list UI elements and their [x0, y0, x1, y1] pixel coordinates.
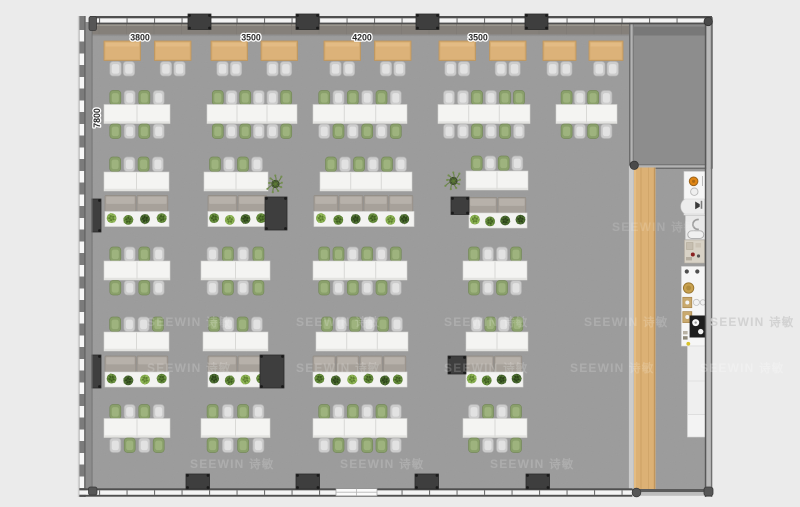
svg-text:3500: 3500	[241, 33, 261, 43]
svg-text:SEEWIN 诗敏: SEEWIN 诗敏	[190, 457, 274, 471]
svg-text:SEEWIN 诗敏: SEEWIN 诗敏	[700, 361, 784, 375]
svg-text:SEEWIN 诗敏: SEEWIN 诗敏	[612, 220, 696, 234]
svg-text:SEEWIN 诗敏: SEEWIN 诗敏	[444, 361, 528, 375]
svg-text:SEEWIN 诗敏: SEEWIN 诗敏	[296, 315, 380, 329]
svg-text:SEEWIN 诗敏: SEEWIN 诗敏	[147, 315, 231, 329]
svg-text:SEEWIN 诗敏: SEEWIN 诗敏	[444, 315, 528, 329]
svg-text:7800: 7800	[92, 108, 102, 128]
svg-text:3500: 3500	[468, 33, 488, 43]
svg-text:SEEWIN 诗敏: SEEWIN 诗敏	[570, 361, 654, 375]
svg-text:3800: 3800	[130, 33, 150, 43]
svg-text:SEEWIN 诗敏: SEEWIN 诗敏	[147, 361, 231, 375]
svg-text:SEEWIN 诗敏: SEEWIN 诗敏	[340, 457, 424, 471]
svg-text:SEEWIN 诗敏: SEEWIN 诗敏	[710, 315, 794, 329]
svg-text:SEEWIN 诗敏: SEEWIN 诗敏	[296, 361, 380, 375]
svg-text:SEEWIN 诗敏: SEEWIN 诗敏	[584, 315, 668, 329]
svg-text:SEEWIN 诗敏: SEEWIN 诗敏	[490, 457, 574, 471]
svg-text:4200: 4200	[352, 33, 372, 43]
